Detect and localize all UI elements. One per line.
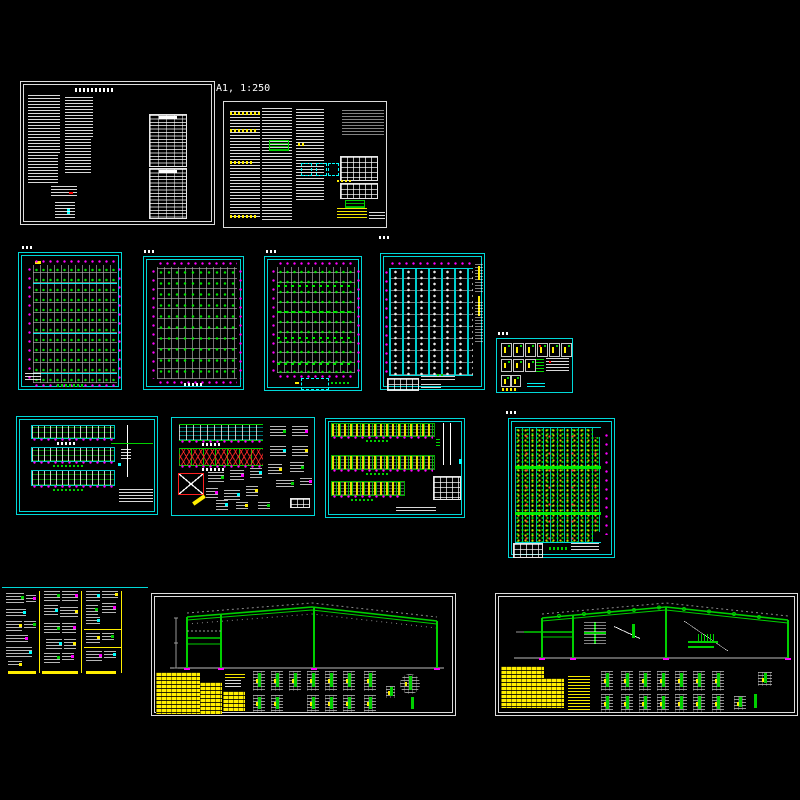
sheet-column-layout-plan[interactable] bbox=[264, 256, 362, 391]
green-band bbox=[515, 466, 601, 469]
green-member-bar bbox=[754, 694, 757, 708]
notes-cluster bbox=[421, 376, 455, 382]
green-band bbox=[277, 363, 355, 365]
section-detail bbox=[343, 695, 355, 712]
section-detail bbox=[621, 671, 633, 691]
dimension-dots bbox=[272, 267, 275, 373]
yellow-title-bar bbox=[86, 671, 116, 674]
section-detail bbox=[601, 671, 613, 691]
cyan-cluster bbox=[527, 383, 545, 389]
detail-box bbox=[121, 449, 131, 461]
notes-line bbox=[396, 507, 436, 511]
connection-detail bbox=[268, 464, 282, 476]
sheet-column-base-details[interactable] bbox=[496, 338, 573, 393]
green-label bbox=[366, 473, 390, 475]
yellow-heading bbox=[230, 129, 258, 132]
connection-detail bbox=[300, 478, 312, 486]
connection-detail bbox=[276, 480, 294, 488]
section-detail bbox=[734, 696, 746, 710]
legend-table bbox=[513, 543, 543, 558]
cyan-dashed-box bbox=[328, 163, 339, 176]
elevation-strip bbox=[31, 447, 115, 462]
yellow-mark bbox=[298, 143, 305, 146]
connection-detail bbox=[290, 462, 304, 474]
base-detail-box bbox=[501, 359, 512, 372]
green-label bbox=[351, 499, 375, 501]
plan-title bbox=[57, 384, 83, 387]
base-detail-box bbox=[525, 343, 536, 357]
section-detail bbox=[639, 671, 651, 691]
base-detail-box bbox=[513, 359, 524, 372]
bracing-strip bbox=[179, 448, 263, 466]
base-detail-box bbox=[537, 343, 548, 357]
connection-detail bbox=[236, 502, 248, 510]
connection-detail bbox=[206, 488, 218, 498]
section-detail bbox=[307, 695, 319, 712]
cyan-gridline bbox=[33, 333, 117, 334]
callout-detail bbox=[684, 621, 728, 651]
connection-detail bbox=[250, 468, 262, 478]
sheet-tag bbox=[498, 332, 510, 335]
detail-line bbox=[450, 423, 451, 465]
cyan-dashed-box bbox=[316, 163, 327, 176]
connection-detail bbox=[270, 446, 286, 456]
section-detail bbox=[307, 671, 319, 691]
dimension-dots bbox=[331, 469, 433, 472]
green-dim-line bbox=[53, 489, 83, 491]
connection-detail bbox=[104, 651, 116, 659]
margin-notes bbox=[475, 302, 483, 342]
notes-cluster bbox=[571, 543, 599, 550]
connection-detail bbox=[230, 470, 244, 482]
notes-cluster bbox=[119, 489, 153, 503]
connection-detail bbox=[62, 591, 78, 601]
base-detail-box bbox=[525, 359, 536, 372]
callout-detail bbox=[584, 622, 606, 644]
foundation-detail bbox=[301, 378, 329, 390]
connection-detail bbox=[86, 633, 100, 643]
yellow-divider bbox=[81, 591, 82, 673]
strip-label bbox=[202, 443, 222, 446]
connection-detail bbox=[246, 486, 258, 496]
connection-detail bbox=[208, 472, 224, 484]
section-detail bbox=[386, 686, 395, 698]
red-mark bbox=[69, 192, 73, 194]
green-band bbox=[277, 337, 355, 339]
elevation-strip bbox=[31, 470, 115, 486]
yellow-title-bar bbox=[42, 671, 78, 674]
plan-title bbox=[184, 383, 204, 386]
connection-detail bbox=[224, 490, 240, 500]
section-detail bbox=[657, 671, 669, 691]
green-member-bar bbox=[411, 697, 414, 709]
section-detail bbox=[253, 671, 265, 691]
callout-detail bbox=[614, 622, 640, 642]
green-detail bbox=[345, 200, 365, 208]
section-detail bbox=[621, 694, 633, 712]
connection-detail bbox=[86, 605, 98, 615]
green-detail bbox=[269, 140, 289, 151]
sheet-roof-bracing-plan[interactable] bbox=[380, 253, 485, 390]
section-detail bbox=[693, 694, 705, 712]
base-detail-box bbox=[511, 375, 521, 387]
notes-column bbox=[296, 109, 324, 201]
connection-detail bbox=[6, 593, 24, 603]
section-detail-round bbox=[400, 674, 420, 694]
structural-grid bbox=[33, 265, 117, 383]
notes-cluster bbox=[225, 680, 241, 688]
cyan-gridline bbox=[33, 373, 117, 374]
schedule-table bbox=[433, 476, 461, 500]
portal-brace-detail bbox=[178, 473, 204, 495]
section-detail bbox=[364, 695, 376, 712]
connection-detail bbox=[6, 609, 26, 617]
dimension-dots bbox=[31, 485, 113, 488]
sheet-tag bbox=[22, 246, 34, 249]
connection-detail bbox=[6, 621, 22, 631]
base-detail-box bbox=[561, 343, 572, 357]
drawing-list-table bbox=[149, 114, 187, 167]
structural-grid bbox=[277, 267, 355, 373]
green-label bbox=[366, 440, 390, 442]
connection-detail bbox=[216, 500, 228, 510]
connection-detail bbox=[270, 426, 286, 438]
section-detail bbox=[325, 671, 337, 691]
base-detail-box bbox=[501, 375, 511, 387]
section-detail bbox=[343, 671, 355, 691]
dimension-dots bbox=[605, 431, 608, 535]
sheet-title-text bbox=[75, 88, 115, 92]
notes-cluster bbox=[369, 212, 385, 220]
connection-detail bbox=[86, 617, 100, 625]
green-label bbox=[331, 382, 349, 384]
green-label bbox=[437, 374, 445, 376]
strip-label bbox=[202, 468, 224, 471]
section-detail bbox=[758, 672, 772, 686]
yellow-divider bbox=[39, 591, 40, 673]
connection-detail bbox=[6, 647, 32, 659]
field-notch bbox=[593, 532, 601, 542]
dimension-dots bbox=[357, 267, 360, 373]
yellow-note-block bbox=[223, 691, 245, 711]
notes-cluster bbox=[25, 373, 41, 381]
yellow-mark bbox=[502, 388, 518, 391]
roof-strip bbox=[179, 424, 263, 441]
connection-detail-group[interactable] bbox=[2, 587, 148, 677]
cyan-mark bbox=[459, 459, 462, 464]
yellow-bar bbox=[478, 266, 480, 280]
yellow-mark bbox=[295, 382, 299, 384]
sheet-foundation-plan[interactable] bbox=[143, 256, 244, 390]
yellow-divider bbox=[84, 629, 121, 630]
dimension-dots bbox=[331, 495, 403, 498]
dimension-dots bbox=[385, 268, 388, 374]
cyan-gridline bbox=[33, 283, 117, 284]
section-detail bbox=[657, 694, 669, 712]
dimension-dots bbox=[28, 265, 31, 383]
dimension-dots bbox=[31, 461, 113, 464]
connection-detail bbox=[44, 605, 58, 617]
section-detail bbox=[675, 694, 687, 712]
schedule-grid bbox=[340, 156, 378, 181]
connection-detail bbox=[6, 635, 28, 643]
green-mark bbox=[436, 439, 440, 447]
connection-detail bbox=[44, 591, 60, 601]
connection-detail bbox=[258, 502, 270, 510]
section-detail bbox=[675, 671, 687, 691]
cyan-dashed-box bbox=[301, 163, 312, 176]
portal-frame-elevation bbox=[504, 598, 792, 664]
connection-detail bbox=[24, 621, 36, 629]
base-detail-box bbox=[549, 343, 560, 357]
connection-detail bbox=[26, 595, 36, 603]
cyan-divider bbox=[2, 587, 148, 588]
green-label bbox=[549, 547, 569, 550]
connection-detail bbox=[64, 639, 76, 649]
notes-column bbox=[65, 139, 91, 173]
drawing-list-table bbox=[149, 168, 187, 219]
cyan-dot bbox=[118, 463, 121, 466]
field-notch bbox=[593, 428, 601, 437]
yellow-note-block bbox=[568, 676, 590, 710]
connection-detail bbox=[102, 603, 116, 613]
connection-detail bbox=[44, 623, 60, 635]
schedule-grid bbox=[340, 183, 378, 199]
connection-detail bbox=[102, 591, 118, 599]
yellow-heading bbox=[230, 161, 252, 164]
detail-line bbox=[443, 423, 444, 465]
sheet-portal-frame-2[interactable] bbox=[495, 593, 798, 716]
green-cluster bbox=[535, 359, 544, 373]
section-detail bbox=[639, 694, 651, 712]
sheet-tag bbox=[266, 250, 278, 253]
member-schedule-table bbox=[156, 672, 200, 714]
notes-column bbox=[230, 111, 260, 219]
elevation-strip bbox=[331, 481, 405, 496]
sheet-tag bbox=[144, 250, 156, 253]
yellow-arrow bbox=[192, 494, 206, 505]
connection-detail bbox=[102, 633, 114, 641]
structural-grid bbox=[157, 267, 237, 379]
dimension-dots bbox=[277, 262, 355, 265]
section-detail bbox=[289, 671, 301, 691]
green-band bbox=[277, 285, 355, 287]
section-detail bbox=[712, 671, 724, 691]
purlin-field bbox=[515, 427, 601, 543]
notes-column bbox=[28, 155, 58, 185]
section-detail bbox=[712, 694, 724, 712]
connection-detail bbox=[62, 623, 76, 633]
sheet-purlin-plan[interactable] bbox=[508, 418, 615, 558]
base-detail-box bbox=[501, 343, 512, 357]
elevation-strip bbox=[331, 455, 435, 470]
cad-model-space: A1, 1:250 bbox=[0, 0, 800, 800]
section-detail bbox=[601, 694, 613, 712]
section-detail bbox=[364, 671, 376, 691]
connection-detail bbox=[8, 661, 22, 667]
yellow-heading bbox=[230, 112, 260, 115]
connection-detail bbox=[292, 446, 308, 456]
notes-column bbox=[262, 108, 292, 220]
dimension-dots bbox=[33, 260, 117, 263]
sheet-wall-elevations[interactable] bbox=[325, 418, 465, 518]
yellow-heading bbox=[230, 215, 258, 218]
connection-detail bbox=[86, 591, 100, 601]
yellow-title-bar bbox=[8, 671, 36, 674]
green-line bbox=[111, 443, 153, 444]
legend-table bbox=[387, 378, 419, 391]
sheet-tag bbox=[506, 411, 518, 414]
roof-framing-field bbox=[389, 268, 473, 376]
section-detail bbox=[325, 695, 337, 712]
legend-detail bbox=[51, 186, 77, 196]
connection-detail bbox=[60, 607, 78, 617]
green-band bbox=[277, 311, 355, 313]
green-band bbox=[515, 512, 601, 515]
sheet-general-notes[interactable] bbox=[20, 81, 215, 225]
yellow-mark bbox=[337, 180, 351, 182]
elevation-strip bbox=[331, 423, 435, 437]
section-detail bbox=[271, 695, 283, 712]
section-detail bbox=[271, 671, 283, 691]
legend-detail bbox=[55, 202, 75, 218]
scale-annotation: A1, 1:250 bbox=[216, 83, 270, 94]
notes-column bbox=[65, 97, 93, 137]
dimension-dots bbox=[239, 267, 242, 379]
sheet-girt-elevations[interactable] bbox=[16, 416, 158, 515]
portal-frame-elevation bbox=[162, 598, 447, 670]
sheet-tag bbox=[379, 236, 391, 239]
section-detail bbox=[253, 695, 265, 712]
notes-column bbox=[28, 95, 60, 153]
connection-detail bbox=[292, 426, 308, 438]
yellow-divider bbox=[84, 647, 121, 648]
dimension-dots bbox=[389, 262, 473, 265]
connection-detail bbox=[46, 639, 62, 649]
sheet-anchor-bolt-plan[interactable] bbox=[18, 252, 122, 390]
notes-cluster bbox=[421, 384, 441, 388]
dimension-dots bbox=[31, 438, 113, 441]
dimension-dots bbox=[157, 262, 237, 265]
member-schedule-table bbox=[200, 682, 222, 714]
green-dim-line bbox=[53, 465, 83, 467]
section-detail bbox=[693, 671, 705, 691]
connection-detail bbox=[86, 651, 102, 661]
sheet-structural-notes[interactable] bbox=[223, 101, 387, 228]
yellow-note bbox=[225, 674, 245, 678]
dimension-dots bbox=[331, 436, 433, 439]
yellow-divider bbox=[121, 591, 122, 673]
notes-cluster bbox=[342, 110, 384, 136]
member-schedule-table bbox=[501, 666, 544, 678]
dimension-dots bbox=[152, 267, 155, 379]
member-schedule-table bbox=[501, 678, 564, 708]
elevation-strip bbox=[31, 425, 115, 439]
sheet-portal-frame-1[interactable] bbox=[151, 593, 456, 716]
sheet-bracing-details[interactable] bbox=[171, 417, 315, 516]
connection-detail bbox=[62, 653, 74, 661]
strip-label bbox=[57, 442, 75, 445]
yellow-notes bbox=[337, 208, 367, 220]
mini-table bbox=[290, 498, 310, 508]
connection-detail bbox=[44, 653, 60, 663]
dimension-dots bbox=[118, 265, 121, 383]
red-dot bbox=[549, 361, 551, 363]
base-detail-box bbox=[513, 343, 524, 357]
